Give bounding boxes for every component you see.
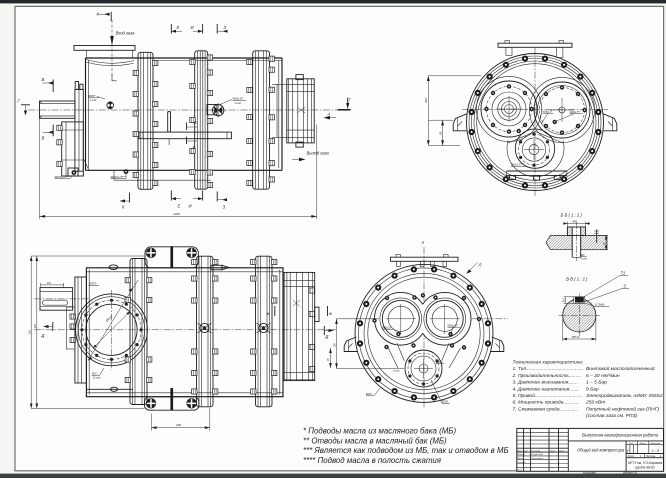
svg-text:у: у xyxy=(626,449,629,453)
svg-text:Пров.: Пров. xyxy=(517,458,523,460)
svg-text:В: В xyxy=(42,136,45,141)
svg-text:6 – 30 Нм³/мин: 6 – 30 Нм³/мин xyxy=(586,373,620,379)
svg-text:Вход газа: Вход газа xyxy=(116,31,136,36)
svg-text:71: 71 xyxy=(621,271,626,276)
svg-text:М20х1.5Р: М20х1.5Р xyxy=(233,99,244,101)
svg-text:группа ЭВ-82: группа ЭВ-82 xyxy=(635,466,655,470)
svg-text:З: З xyxy=(224,25,227,30)
svg-text:12 отв: 12 отв xyxy=(93,377,101,379)
svg-text:Дата: Дата xyxy=(558,450,566,452)
svg-text:Кацуба А.В.: Кацуба А.В. xyxy=(531,453,544,456)
svg-text:А: А xyxy=(421,240,425,245)
svg-text:Ø370: Ø370 xyxy=(88,282,97,286)
svg-text:1 – 5 Бар: 1 – 5 Бар xyxy=(586,380,607,386)
svg-text:И: И xyxy=(189,204,192,209)
svg-text:440: 440 xyxy=(424,98,428,103)
svg-text:200: 200 xyxy=(334,342,336,348)
svg-text:Б: Б xyxy=(194,120,197,125)
svg-text:14,5: 14,5 xyxy=(563,297,566,302)
svg-text:**** Подвод масла в полость сж: **** Подвод масла в полость сжатия xyxy=(303,456,442,465)
svg-text:Д: Д xyxy=(325,334,329,339)
svg-text:В: В xyxy=(42,77,45,82)
svg-text:В-В ( 1 : 2 ): В-В ( 1 : 2 ) xyxy=(566,277,588,282)
svg-text:** Отводы масла в масляный бак: ** Отводы масла в масляный бак (МБ) xyxy=(303,436,447,445)
svg-text:Утв.: Утв. xyxy=(517,469,522,471)
svg-text:7. Сжимаемая среда............: 7. Сжимаемая среда............. xyxy=(513,406,578,412)
svg-text:Листов: Листов xyxy=(645,454,656,458)
svg-text:Попутный нефтяной газ (ПНГ): Попутный нефтяной газ (ПНГ) xyxy=(586,405,659,412)
svg-text:Выпускная квалификационная раб: Выпускная квалификационная работа xyxy=(582,432,659,437)
svg-text:4. Давление нагнетания.......: 4. Давление нагнетания....... xyxy=(513,386,579,392)
svg-text:Изм Лист: Изм Лист xyxy=(517,450,527,452)
svg-text:Ø20Н7: Ø20Н7 xyxy=(87,96,96,98)
svg-text:Б-Б ( 1 : 2 ): Б-Б ( 1 : 2 ) xyxy=(561,213,583,218)
svg-text:И: И xyxy=(191,25,194,30)
svg-text:1390: 1390 xyxy=(173,212,180,216)
svg-text:Ø40: Ø40 xyxy=(572,221,578,224)
svg-text:2 отв: 2 отв xyxy=(392,371,400,373)
svg-text:№ докум.: № докум. xyxy=(531,449,541,452)
svg-text:85: 85 xyxy=(438,131,442,135)
svg-text:6. Мощность привода...........: 6. Мощность привода........... xyxy=(513,400,579,406)
svg-text:Е: Е xyxy=(178,204,181,209)
svg-text:М20х1.5***: М20х1.5*** xyxy=(55,175,71,179)
svg-text:4 отв: 4 отв xyxy=(581,258,588,261)
svg-text:Д: Д xyxy=(41,333,45,338)
svg-text:А: А xyxy=(327,111,331,116)
svg-text:2 отв: 2 отв xyxy=(234,103,242,105)
svg-text:Масштаб: Масштаб xyxy=(651,443,662,445)
svg-text:Подп.: Подп. xyxy=(550,449,556,452)
svg-text:5. Привод.....................: 5. Привод...............................… xyxy=(513,393,583,399)
svg-text:*** Является как подводом из М: *** Является как подводом из МБ, так и о… xyxy=(303,446,509,455)
svg-text:2. Производительность.........: 2. Производительность......... xyxy=(512,373,582,379)
svg-text:Общий вид компрессора: Общий вид компрессора xyxy=(577,448,625,453)
svg-text:Выход газа: Выход газа xyxy=(307,150,330,155)
svg-text:1 : 4: 1 : 4 xyxy=(652,449,659,453)
svg-text:1. Тип........................: 1. Тип..................................… xyxy=(513,366,584,372)
svg-text:Б: Б xyxy=(193,145,196,150)
svg-text:250 кВт: 250 кВт xyxy=(585,400,605,406)
svg-text:* Подводы масла из масляного б: * Подводы масла из масляного бака (МБ) xyxy=(303,427,456,436)
svg-text:Лист: Лист xyxy=(627,454,636,458)
svg-text:3. Давление всасывания.......: 3. Давление всасывания....... xyxy=(513,380,578,386)
svg-text:Техническая характеристика:: Техническая характеристика: xyxy=(513,360,584,366)
svg-text:Масса: Масса xyxy=(640,443,647,445)
svg-text:2 отв: 2 отв xyxy=(89,100,97,102)
svg-text:Т.контр.: Т.контр. xyxy=(517,462,526,464)
svg-text:Ø85 к6: Ø85 к6 xyxy=(571,337,580,339)
svg-text:Лит.: Лит. xyxy=(628,443,634,445)
svg-text:9 Бар: 9 Бар xyxy=(586,386,599,392)
svg-text:М20х1.5***: М20х1.5*** xyxy=(111,175,127,179)
svg-text:Пластинин: Пластинин xyxy=(531,458,544,460)
svg-text:Электродвигатель АИМУ 355S2: Электродвигатель АИМУ 355S2 xyxy=(586,393,663,399)
svg-text:Винтовой маслозаполненный: Винтовой маслозаполненный xyxy=(586,365,655,372)
svg-text:З: З xyxy=(223,205,226,210)
svg-text:Л: Л xyxy=(478,263,482,268)
svg-text:200: 200 xyxy=(175,423,181,427)
svg-text:МГТУ им. Н.Э.Баумана: МГТУ им. Н.Э.Баумана xyxy=(628,461,662,465)
svg-text:Разраб.: Разраб. xyxy=(517,454,525,456)
svg-text:(состав газа см. РПЗ): (состав газа см. РПЗ) xyxy=(586,413,637,419)
svg-text:31,75(h9): 31,75(h9) xyxy=(595,305,605,307)
svg-text:Е: Е xyxy=(177,25,180,30)
